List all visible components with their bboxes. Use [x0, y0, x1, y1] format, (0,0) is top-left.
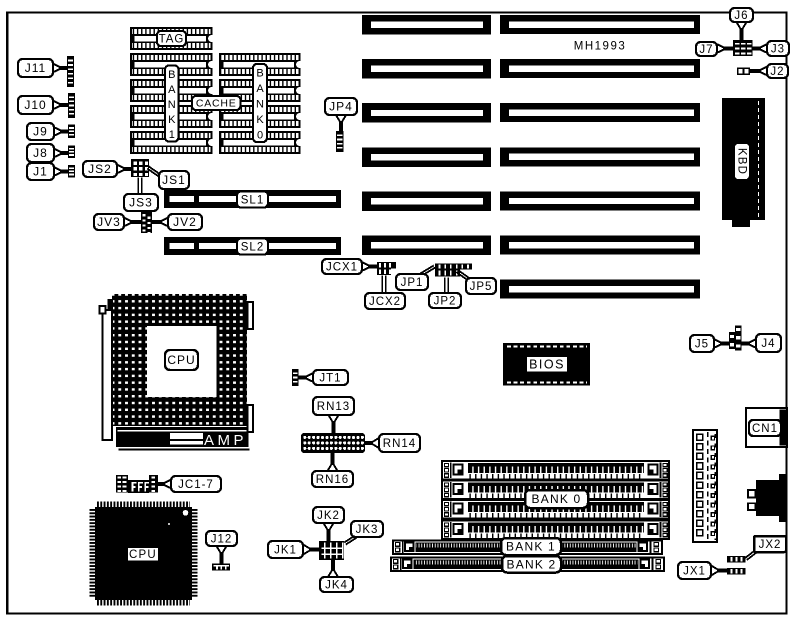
- svg-text:AMP: AMP: [204, 432, 247, 449]
- svg-text:JK1: JK1: [274, 545, 297, 557]
- svg-text:J12: J12: [211, 534, 233, 546]
- svg-text:K: K: [168, 114, 176, 126]
- svg-text:JK3: JK3: [356, 524, 379, 536]
- svg-text:J5: J5: [695, 339, 709, 351]
- svg-text:J1: J1: [33, 165, 48, 179]
- svg-text:N: N: [256, 99, 264, 111]
- svg-text:JT1: JT1: [319, 373, 341, 385]
- svg-text:JCX1: JCX1: [326, 262, 358, 274]
- svg-text:N: N: [168, 99, 176, 111]
- svg-text:JP2: JP2: [434, 296, 457, 308]
- svg-text:SL1: SL1: [241, 195, 264, 207]
- svg-text:JX1: JX1: [683, 566, 706, 578]
- svg-text:JP5: JP5: [470, 281, 493, 293]
- svg-text:1: 1: [169, 129, 175, 141]
- svg-text:JV2: JV2: [173, 215, 197, 229]
- svg-text:JV3: JV3: [97, 215, 121, 229]
- svg-text:JS3: JS3: [129, 196, 153, 210]
- svg-text:BANK 2: BANK 2: [507, 557, 557, 571]
- svg-text:J10: J10: [24, 98, 46, 112]
- svg-text:JX2: JX2: [759, 539, 782, 551]
- svg-text:CPU: CPU: [167, 353, 195, 367]
- svg-text:JC1-7: JC1-7: [178, 479, 214, 491]
- svg-text:RN16: RN16: [316, 474, 349, 486]
- svg-text:B: B: [256, 68, 263, 80]
- svg-text:JS1: JS1: [162, 173, 186, 187]
- svg-text:J11: J11: [25, 61, 46, 75]
- svg-text:JK4: JK4: [325, 580, 348, 592]
- svg-text:SL2: SL2: [241, 242, 264, 254]
- svg-text:CPU: CPU: [129, 549, 157, 561]
- svg-text:JP1: JP1: [401, 277, 424, 289]
- svg-text:TAG: TAG: [159, 34, 185, 46]
- svg-text:A: A: [256, 83, 264, 95]
- svg-text:JP4: JP4: [329, 100, 353, 114]
- svg-text:RN13: RN13: [317, 401, 350, 413]
- svg-text:BIOS: BIOS: [529, 358, 565, 372]
- svg-text:RN14: RN14: [383, 438, 416, 450]
- svg-text:J7: J7: [699, 44, 713, 56]
- svg-text:J8: J8: [33, 146, 48, 160]
- svg-text:J9: J9: [33, 125, 48, 139]
- svg-text:KBD: KBD: [735, 148, 747, 175]
- svg-text:BANK 0: BANK 0: [532, 492, 582, 506]
- svg-text:MH1993: MH1993: [574, 40, 626, 52]
- svg-text:B: B: [168, 69, 175, 81]
- svg-text:JS2: JS2: [88, 162, 112, 176]
- svg-text:J4: J4: [761, 338, 775, 350]
- svg-text:JK2: JK2: [317, 510, 340, 522]
- svg-text:K: K: [256, 114, 264, 126]
- svg-text:CN1: CN1: [752, 423, 778, 435]
- svg-text:J6: J6: [734, 10, 748, 22]
- svg-text:0: 0: [257, 130, 263, 142]
- svg-text:JCX2: JCX2: [369, 296, 401, 308]
- svg-text:CACHE: CACHE: [196, 98, 237, 110]
- svg-text:J2: J2: [770, 66, 784, 78]
- svg-text:A: A: [168, 84, 176, 96]
- svg-text:J3: J3: [771, 44, 785, 56]
- svg-text:BANK 1: BANK 1: [506, 540, 556, 554]
